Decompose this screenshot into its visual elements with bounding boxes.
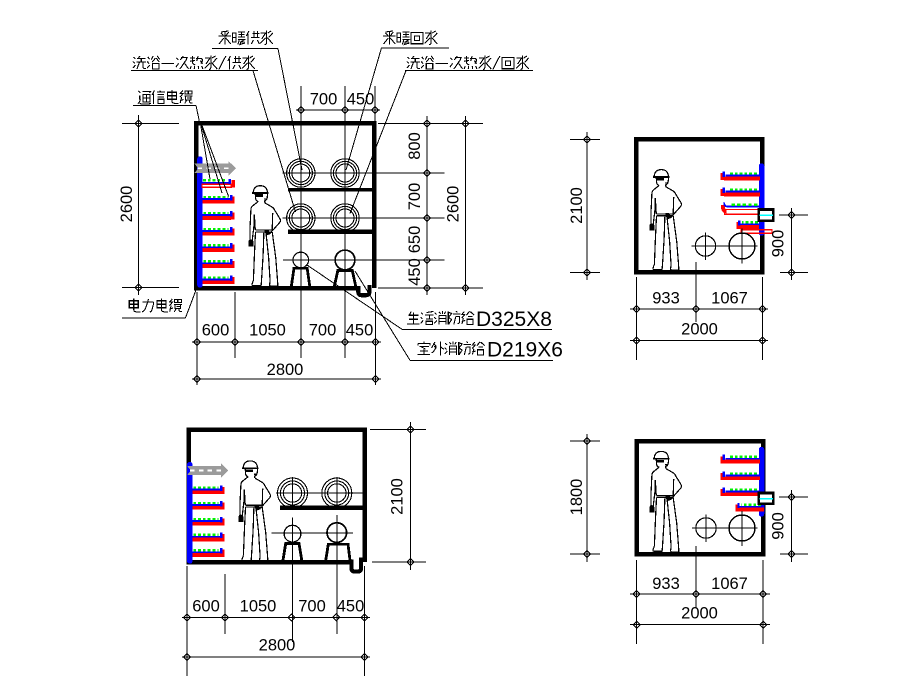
svg-text:D325X8: D325X8 — [476, 308, 552, 331]
svg-text:2100: 2100 — [389, 478, 407, 515]
svg-text:450: 450 — [337, 598, 365, 616]
svg-text:900: 900 — [770, 512, 788, 540]
svg-text:2600: 2600 — [118, 186, 136, 223]
svg-text:933: 933 — [652, 575, 680, 593]
svg-text:600: 600 — [202, 322, 230, 340]
svg-text:933: 933 — [652, 290, 680, 308]
svg-text:650: 650 — [406, 226, 424, 254]
svg-text:1050: 1050 — [249, 322, 286, 340]
svg-text:900: 900 — [770, 230, 788, 258]
svg-text:700: 700 — [309, 322, 337, 340]
svg-text:2600: 2600 — [445, 186, 463, 223]
svg-text:450: 450 — [346, 322, 374, 340]
svg-text:2100: 2100 — [568, 187, 586, 224]
svg-text:1800: 1800 — [568, 479, 586, 516]
svg-text:700: 700 — [298, 598, 326, 616]
svg-text:2000: 2000 — [681, 321, 718, 339]
svg-text:2800: 2800 — [259, 637, 296, 655]
svg-text:800: 800 — [406, 132, 424, 160]
svg-text:700: 700 — [310, 91, 338, 109]
svg-text:700: 700 — [406, 183, 424, 211]
svg-text:450: 450 — [347, 91, 375, 109]
svg-text:D219X6: D219X6 — [487, 339, 563, 362]
svg-text:1050: 1050 — [240, 598, 277, 616]
svg-text:2000: 2000 — [681, 605, 718, 623]
svg-text:1067: 1067 — [711, 290, 748, 308]
svg-text:2800: 2800 — [267, 361, 304, 379]
svg-text:450: 450 — [406, 258, 424, 286]
svg-text:600: 600 — [192, 598, 220, 616]
svg-text:1067: 1067 — [711, 575, 748, 593]
